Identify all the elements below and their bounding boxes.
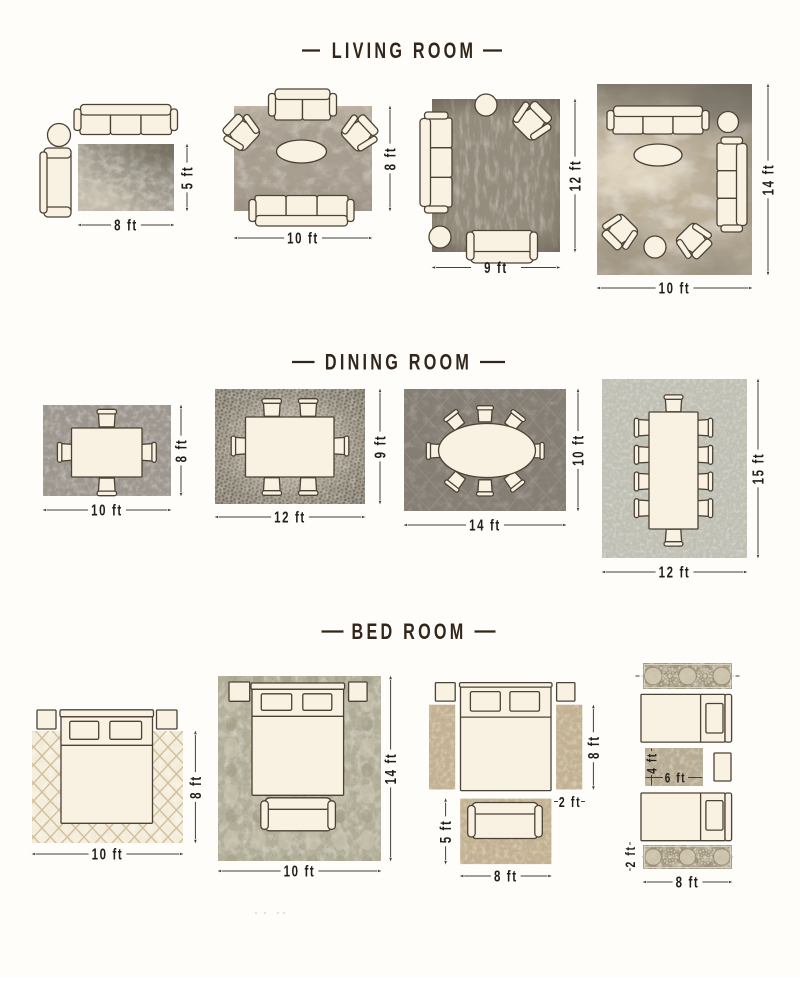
svg-text:BED ROOM: BED ROOM	[352, 619, 467, 644]
svg-text:DINING ROOM: DINING ROOM	[325, 350, 472, 375]
svg-text:6 ft: 6 ft	[665, 770, 686, 786]
svg-text:8 ft: 8 ft	[114, 217, 138, 234]
svg-text:8 ft: 8 ft	[382, 147, 399, 171]
svg-text:8 ft: 8 ft	[494, 868, 518, 885]
svg-text:9 ft: 9 ft	[484, 259, 508, 276]
svg-text:14 ft: 14 ft	[760, 164, 777, 196]
svg-text:9 ft: 9 ft	[372, 435, 389, 459]
svg-text:14 ft: 14 ft	[383, 753, 400, 785]
svg-text:2 ft: 2 ft	[622, 845, 638, 867]
svg-text:15 ft: 15 ft	[750, 453, 767, 485]
svg-text:5 ft: 5 ft	[438, 820, 455, 844]
svg-text:LIVING ROOM: LIVING ROOM	[332, 38, 476, 63]
svg-text:5 ft: 5 ft	[179, 166, 196, 190]
svg-text:12 ft: 12 ft	[274, 509, 306, 526]
svg-text:10 ft: 10 ft	[287, 230, 319, 247]
svg-text:4 ft: 4 ft	[644, 752, 660, 773]
svg-text:10 ft: 10 ft	[284, 863, 316, 880]
svg-text:12 ft: 12 ft	[567, 160, 584, 192]
svg-text:10 ft: 10 ft	[92, 846, 124, 863]
svg-text:8 ft: 8 ft	[585, 735, 602, 759]
svg-text:14 ft: 14 ft	[469, 517, 501, 534]
svg-text:8 ft: 8 ft	[173, 439, 190, 463]
svg-text:8 ft: 8 ft	[187, 775, 204, 799]
svg-text:2 ft: 2 ft	[559, 793, 582, 810]
svg-text:10 ft: 10 ft	[570, 434, 587, 466]
svg-text:10 ft: 10 ft	[91, 502, 123, 519]
svg-text:12 ft: 12 ft	[659, 564, 691, 581]
svg-text:8 ft: 8 ft	[676, 874, 700, 891]
svg-text:10 ft: 10 ft	[659, 280, 691, 297]
